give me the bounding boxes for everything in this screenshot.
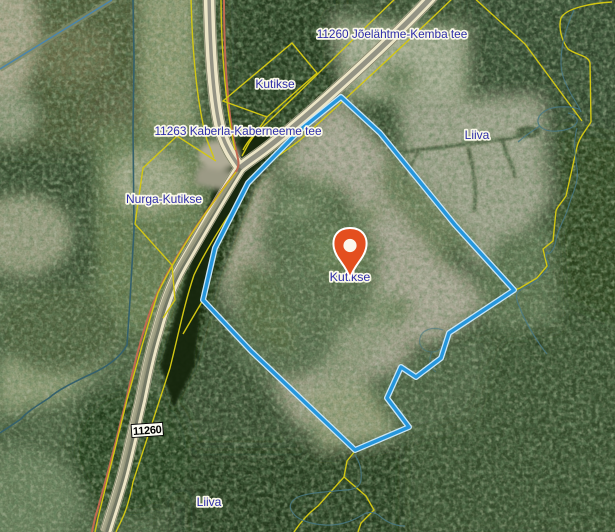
svg-text:Kutikse: Kutikse [255, 77, 295, 91]
svg-text:11260 Jõelähtme-Kemba tee: 11260 Jõelähtme-Kemba tee [317, 27, 468, 41]
svg-text:11263 Kaberla-Kaberneeme tee: 11263 Kaberla-Kaberneeme tee [154, 124, 321, 138]
svg-text:Liiva: Liiva [465, 128, 490, 142]
svg-text:Liiva: Liiva [197, 495, 222, 509]
svg-text:Nurga-Kutikse: Nurga-Kutikse [126, 192, 202, 206]
svg-text:11260: 11260 [133, 424, 162, 438]
